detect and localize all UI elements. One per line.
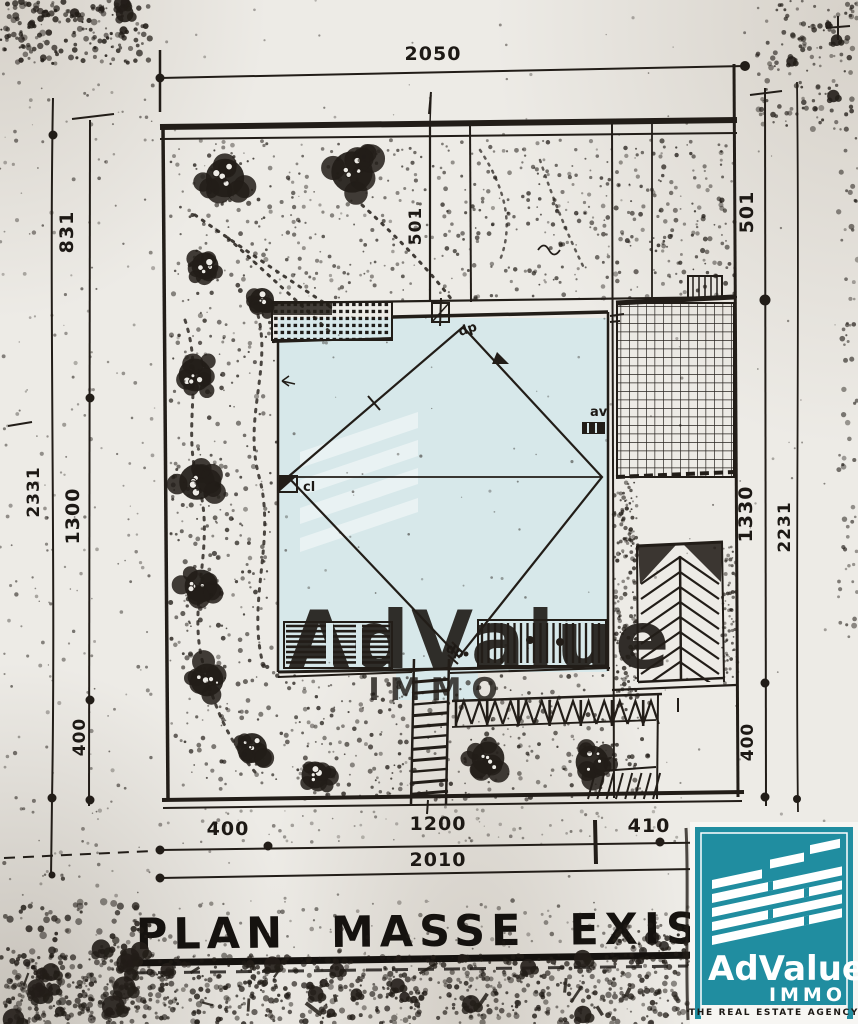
dimension-right-top: 501 — [736, 191, 758, 234]
advalue-logo-stamp: AdValue IMMO THE REAL ESTATE AGENCY — [686, 822, 858, 1024]
dimension-left-bottom: 400 — [70, 718, 90, 757]
logo-division: IMMO — [769, 984, 846, 1006]
top-dimension-line — [160, 66, 745, 78]
dimension-right-outer: 2231 — [775, 501, 795, 552]
dimension-left-outer: 2331 — [24, 466, 44, 517]
dimension-left-top: 831 — [56, 211, 78, 254]
site-plan-drawing: AdValue IMMO 2050 — [0, 0, 858, 1024]
dimension-top-total: 2050 — [405, 43, 462, 65]
right-inner-dimension-line — [765, 88, 766, 806]
av-marker — [582, 422, 605, 434]
annotation-cl: cl — [303, 480, 315, 495]
right-outer-dimension-line — [797, 82, 798, 812]
scan-squiggle — [538, 246, 560, 255]
fence-zigzag-pattern — [456, 700, 659, 726]
dimension-right-mid: 1330 — [735, 486, 757, 543]
logo-name: AdValue — [708, 949, 858, 989]
annotation-av: av — [590, 405, 608, 420]
dimension-bottom-mid: 1200 — [410, 813, 467, 835]
dimension-left-mid: 1300 — [62, 488, 84, 545]
scanned-site-plan-document: AdValue IMMO 2050 — [0, 0, 858, 1024]
logo-tagline: THE REAL ESTATE AGENCY — [689, 1008, 858, 1018]
paved-terrace — [616, 276, 734, 477]
dimension-bottom-total: 2010 — [410, 849, 467, 871]
dimension-right-bottom: 400 — [738, 723, 758, 762]
